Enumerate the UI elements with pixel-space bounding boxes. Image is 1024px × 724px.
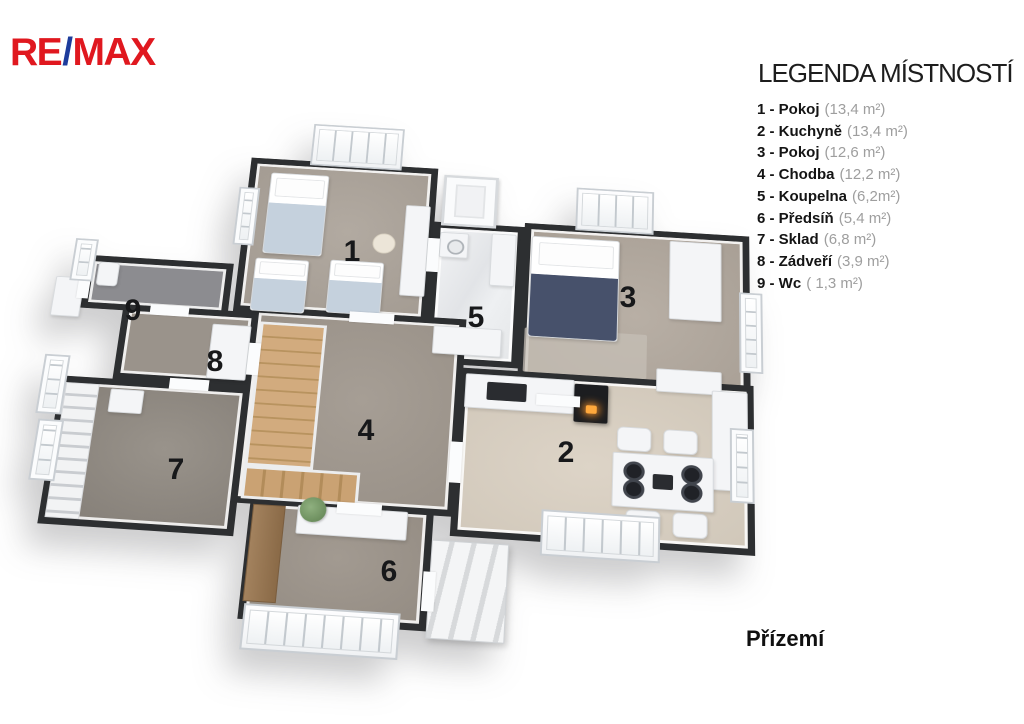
legend-item-label: 9 - Wc (757, 275, 801, 292)
legend-item: 1 - Pokoj(13,4 m²) (757, 99, 1017, 121)
pillow (274, 177, 325, 199)
plate (681, 482, 703, 503)
plate (623, 479, 645, 500)
legend-item-area: (5,4 m²) (839, 210, 892, 227)
bed-single-right (325, 260, 384, 316)
bed-double (262, 172, 329, 256)
washing-machine (439, 232, 469, 259)
legend-item: 6 - Předsíň(5,4 m²) (757, 208, 1017, 230)
legend-item: 7 - Sklad(6,8 m²) (757, 229, 1017, 251)
legend-item: 9 - Wc( 1,3 m²) (757, 273, 1017, 295)
dining-table (611, 452, 713, 513)
bed-navy (527, 236, 620, 342)
cooktop (486, 382, 527, 402)
legend-item-area: (13,4 m²) (847, 123, 908, 140)
legend-item-label: 5 - Koupelna (757, 188, 847, 205)
window-room2-right (730, 428, 755, 504)
legend-item-area: (12,2 m²) (840, 166, 901, 183)
window-room2-bottom (540, 509, 661, 563)
floor-label: Přízemí (746, 626, 824, 652)
pillow (539, 242, 614, 270)
hall-closet (206, 324, 252, 381)
pillow (259, 261, 306, 277)
legend-item-area: (13,4 m²) (825, 101, 886, 118)
page: RE/MAX (0, 0, 1024, 724)
door-room2 (448, 441, 463, 483)
blanket (263, 203, 325, 256)
legend-item: 4 - Chodba(12,2 m²) (757, 164, 1017, 186)
wardrobe (669, 241, 722, 322)
dining-chair (672, 512, 707, 539)
legend-item: 8 - Zádveří(3,9 m²) (757, 251, 1017, 273)
legend-item-area: (3,9 m²) (837, 253, 890, 270)
window-room3-top (575, 188, 654, 235)
door-room5 (426, 238, 440, 272)
outdoor-steps (425, 540, 509, 644)
legend-item-area: ( 1,3 m²) (806, 275, 863, 292)
storage-box (107, 388, 144, 414)
window-room6-bottom (239, 603, 401, 660)
bed-single-left (250, 258, 310, 314)
dining-chair (663, 429, 697, 455)
door-room6-exterior (421, 571, 436, 611)
legend-item-label: 4 - Chodba (757, 166, 835, 183)
dining-chair (617, 426, 652, 452)
legend-item: 2 - Kuchyně(13,4 m²) (757, 121, 1017, 143)
floor-plan (15, 50, 795, 670)
bathroom-vanity (432, 325, 502, 357)
toilet (96, 261, 121, 286)
serving-tray (653, 474, 674, 490)
window-room1-top (310, 124, 405, 171)
pillow (334, 263, 381, 279)
blanket (326, 280, 381, 315)
fire-glow (586, 405, 597, 414)
blanket (251, 278, 307, 313)
legend: LEGENDA MÍSTNOSTÍ 1 - Pokoj(13,4 m²) 2 -… (757, 58, 1017, 294)
legend-item-area: (6,2m²) (852, 188, 900, 205)
legend-item-area: (6,8 m²) (824, 231, 877, 248)
bathroom-shelf (489, 233, 517, 287)
legend-title: LEGENDA MÍSTNOSTÍ (758, 58, 1017, 89)
legend-item-label: 6 - Předsíň (757, 210, 834, 227)
legend-item: 3 - Pokoj(12,6 m²) (757, 142, 1017, 164)
back-porch (441, 175, 499, 229)
legend-item-area: (12,6 m²) (825, 144, 886, 161)
floor-plan-3d-layer (0, 88, 801, 690)
legend-item-label: 2 - Kuchyně (757, 123, 842, 140)
legend-item: 5 - Koupelna(6,2m²) (757, 186, 1017, 208)
navy-blanket (528, 274, 618, 341)
washer-drum (447, 239, 465, 255)
legend-item-label: 7 - Sklad (757, 231, 819, 248)
legend-item-label: 8 - Zádveří (757, 253, 832, 270)
legend-item-label: 1 - Pokoj (757, 101, 820, 118)
legend-item-label: 3 - Pokoj (757, 144, 820, 161)
window-room3-right (739, 292, 763, 374)
